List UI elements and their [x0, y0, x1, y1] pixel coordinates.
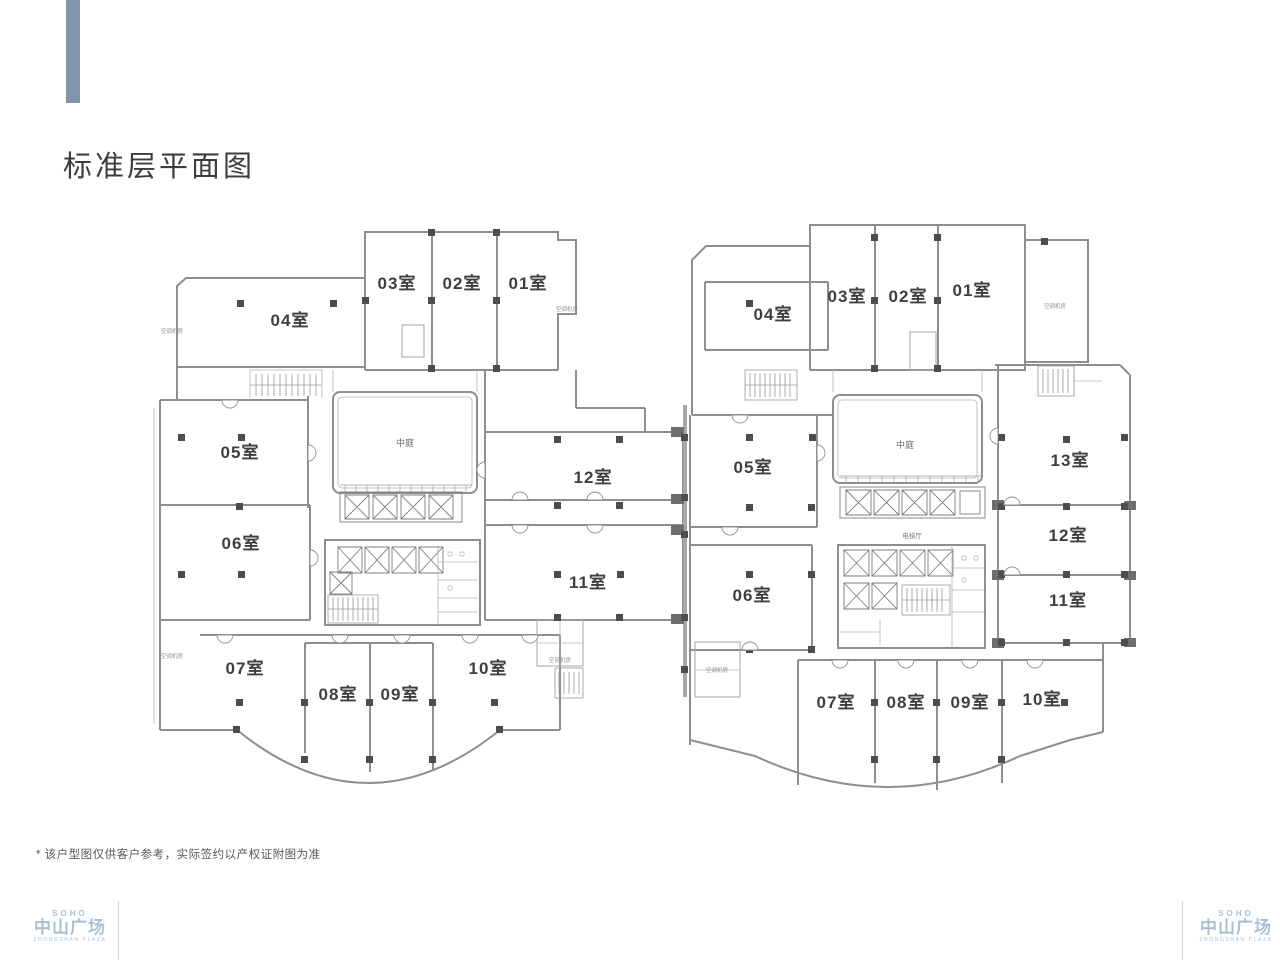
room-label-left-04: 04室 [271, 310, 310, 330]
room-label-right-07: 07室 [817, 692, 856, 712]
room-label-left-10: 10室 [469, 658, 508, 678]
left-core-washroom [438, 545, 478, 625]
logo-name: 中山广场 [22, 918, 118, 938]
logo-brand: SOHO [22, 909, 118, 918]
right-elevator-bank-frame [840, 487, 985, 518]
right-fixture [962, 578, 966, 582]
room-label-left-01: 01室 [509, 273, 548, 293]
right-bank-end-room [960, 491, 980, 514]
logo-divider-right [1182, 901, 1183, 960]
right-atrium-inner [838, 400, 977, 478]
room-label-left-08: 08室 [319, 684, 358, 704]
left-atrium-railing [340, 485, 472, 492]
left-tower-plan: 01室 02室 03室 04室 05室 06室 07室 08室 09室 10室 … [154, 229, 688, 783]
logo-subtitle: ZHONGSHAN PLAZA [22, 938, 118, 944]
accent-bar [66, 0, 80, 103]
room-label-left-11: 11室 [569, 572, 607, 592]
room-label-right-11: 11室 [1049, 590, 1087, 610]
right-elevator-hall-label: 电梯厅 [902, 531, 922, 540]
room-label-right-01: 01室 [953, 280, 992, 300]
right-small-room [910, 332, 936, 370]
right-tower-bottom-arc [755, 756, 1020, 787]
right-service-label: 空调机房 [1044, 302, 1067, 310]
room-label-left-05: 05室 [221, 442, 260, 462]
left-fixture [448, 586, 452, 590]
right-fixture [962, 556, 966, 560]
left-atrium-label: 中庭 [396, 437, 414, 448]
room-label-right-04: 04室 [754, 304, 793, 324]
left-service-label: 空调机房 [161, 327, 184, 335]
right-entry-stair-treads [745, 373, 797, 397]
right-tower-plan: 01室 02室 03室 04室 05室 06室 07室 08室 09室 10室 … [690, 225, 1136, 790]
room-label-left-06: 06室 [222, 533, 261, 553]
logo-brand: SOHO [1188, 909, 1280, 918]
room-label-left-07: 07室 [226, 658, 265, 678]
right-atrium-label: 中庭 [896, 439, 914, 450]
room-label-right-13: 13室 [1051, 450, 1090, 470]
room-label-right-05: 05室 [734, 457, 773, 477]
left-service-label: 空调机房 [549, 656, 572, 664]
left-entry-stair [250, 374, 322, 396]
room-label-left-03: 03室 [378, 273, 417, 293]
left-aux-stair-treads [559, 672, 579, 694]
logo-name: 中山广场 [1188, 918, 1280, 938]
left-service-label: 空调机房 [556, 305, 579, 313]
left-fixture [460, 552, 464, 556]
room-label-right-03: 03室 [828, 286, 867, 306]
left-fixture [448, 552, 452, 556]
left-tower-walls [160, 232, 683, 772]
logo-bottom-right: SOHO 中山广场 ZHONGSHAN PLAZA [1188, 909, 1280, 943]
slide-standard-floor-plan: { "page": { "title": "标准层平面图", "footnote… [0, 0, 1280, 960]
right-atrium [833, 395, 982, 483]
room-label-left-02: 02室 [443, 273, 482, 293]
logo-subtitle: ZHONGSHAN PLAZA [1188, 938, 1280, 944]
logo-divider-left [118, 901, 119, 960]
room-label-right-10: 10室 [1023, 689, 1062, 709]
floor-plans: 01室 02室 03室 04室 05室 06室 07室 08室 09室 10室 … [140, 200, 1140, 825]
left-doors [217, 400, 603, 643]
logo-bottom-left: SOHO 中山广场 ZHONGSHAN PLAZA [22, 909, 118, 943]
right-wing-stair-treads [1043, 369, 1068, 393]
right-fixture [974, 556, 978, 560]
page-title: 标准层平面图 [63, 143, 255, 185]
left-core-elevators [330, 547, 443, 594]
right-service-label: 空调机房 [706, 666, 729, 674]
right-core [838, 545, 985, 648]
room-label-left-12: 12室 [574, 467, 613, 487]
room-label-left-09: 09室 [381, 684, 420, 704]
left-elevator-bank [345, 495, 453, 519]
disclaimer-footnote: * 该户型图仅供客户参考，实际签约以产权证附图为准 [36, 846, 321, 862]
left-service-label: 空调机房 [161, 652, 184, 660]
room-label-right-12: 12室 [1049, 525, 1088, 545]
room-label-right-08: 08室 [887, 692, 926, 712]
left-small-room [402, 325, 424, 357]
right-core-stair-treads [902, 588, 950, 612]
right-elevator-bank [846, 490, 955, 515]
right-atrium-railing [840, 476, 982, 483]
room-label-right-06: 06室 [733, 585, 772, 605]
room-label-right-09: 09室 [951, 692, 990, 712]
room-label-right-02: 02室 [889, 286, 928, 306]
left-core-stair-treads [328, 597, 378, 621]
right-doors [722, 415, 1043, 668]
